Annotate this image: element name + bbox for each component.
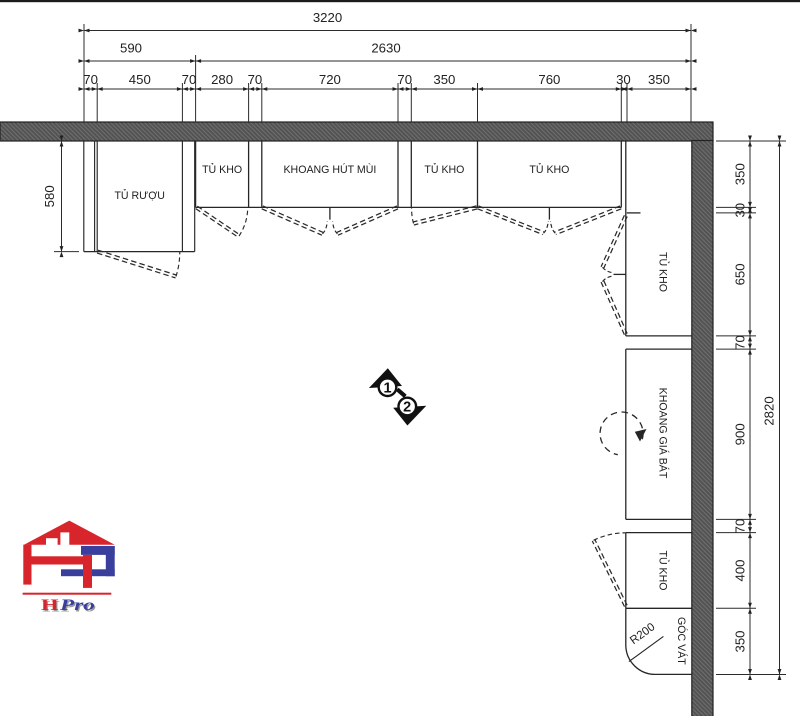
svg-text:350: 350 [733,630,748,652]
svg-text:TỦ KHO: TỦ KHO [657,252,670,292]
svg-text:70: 70 [397,72,412,87]
svg-text:2: 2 [403,400,411,416]
svg-text:TỦ KHO: TỦ KHO [202,163,242,176]
svg-text:70: 70 [248,72,263,87]
svg-text:400: 400 [733,559,748,581]
svg-text:Pro: Pro [59,597,95,614]
svg-text:350: 350 [648,72,670,87]
svg-text:580: 580 [42,185,57,207]
svg-text:760: 760 [538,72,560,87]
svg-text:2820: 2820 [762,396,777,425]
svg-text:TỦ RƯỢU: TỦ RƯỢU [114,189,165,202]
svg-text:TỦ KHO: TỦ KHO [424,163,464,176]
svg-text:3220: 3220 [313,10,342,25]
svg-text:TỦ KHO: TỦ KHO [529,163,569,176]
svg-text:70: 70 [83,72,98,87]
svg-text:30: 30 [733,203,748,218]
svg-text:720: 720 [319,72,341,87]
svg-text:590: 590 [120,41,142,56]
svg-text:70: 70 [733,335,748,350]
svg-text:70: 70 [182,72,197,87]
svg-text:350: 350 [733,163,748,185]
svg-text:900: 900 [733,423,748,445]
svg-text:H: H [41,597,58,614]
svg-text:TỦ KHO: TỦ KHO [657,550,670,590]
svg-text:1: 1 [384,381,392,397]
svg-text:450: 450 [129,72,151,87]
svg-text:30: 30 [616,72,631,87]
svg-text:280: 280 [211,72,233,87]
svg-text:GÓC VÁT: GÓC VÁT [675,617,688,665]
svg-text:70: 70 [733,519,748,534]
svg-text:650: 650 [733,263,748,285]
svg-text:350: 350 [433,72,455,87]
svg-text:KHOANG GIÁ BÁT: KHOANG GIÁ BÁT [657,388,670,479]
svg-text:2630: 2630 [371,41,400,56]
svg-text:KHOANG HÚT MÙI: KHOANG HÚT MÙI [283,163,376,176]
